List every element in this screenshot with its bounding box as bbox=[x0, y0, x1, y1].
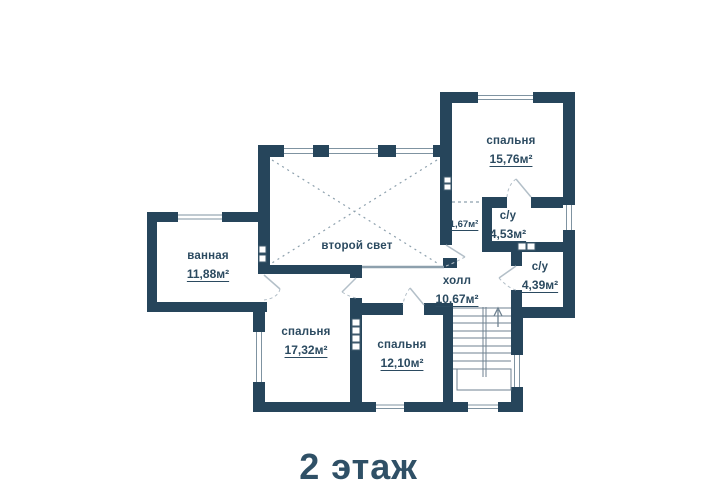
room-label-bedroom-3: спальня 12,10м² bbox=[377, 338, 426, 374]
room-area: 4,39м² bbox=[522, 278, 558, 294]
room-label-bathroom-ensuite-2: с/у 4,39м² bbox=[522, 260, 558, 296]
room-name: спальня bbox=[377, 338, 426, 353]
room-label-bedroom-2: спальня 17,32м² bbox=[281, 325, 330, 361]
room-label-bathroom-ensuite-1: с/у 4,53м² bbox=[490, 209, 526, 245]
room-area: 17,32м² bbox=[285, 343, 328, 359]
room-name: с/у bbox=[522, 260, 558, 275]
floor-title: 2 этаж bbox=[0, 446, 717, 488]
stair-direction-arrow bbox=[494, 308, 502, 327]
room-label-bath: ванная 11,88м² bbox=[187, 249, 229, 285]
room-label-corridor: 1,67м² bbox=[450, 213, 479, 234]
room-area: 1,67м² bbox=[450, 219, 479, 231]
room-area: 12,10м² bbox=[381, 356, 424, 372]
room-area: 10,67м² bbox=[436, 292, 479, 308]
room-name: спальня bbox=[281, 325, 330, 340]
staircase bbox=[453, 307, 511, 390]
room-area: 15,76м² bbox=[490, 152, 533, 168]
room-area: 4,53м² bbox=[490, 227, 526, 243]
room-name: холл bbox=[436, 274, 479, 289]
room-label-hall: холл 10,67м² bbox=[436, 274, 479, 310]
room-name: спальня bbox=[486, 134, 535, 149]
room-label-bedroom-1: спальня 15,76м² bbox=[486, 134, 535, 170]
floor-plan: спальня 15,76м² с/у 4,53м² с/у 4,39м² 1,… bbox=[0, 0, 717, 502]
room-name: второй свет bbox=[321, 239, 392, 254]
room-name: с/у bbox=[490, 209, 526, 224]
room-name: ванная bbox=[187, 249, 229, 264]
room-label-second-light: второй свет bbox=[321, 239, 392, 254]
room-area: 11,88м² bbox=[187, 267, 229, 283]
